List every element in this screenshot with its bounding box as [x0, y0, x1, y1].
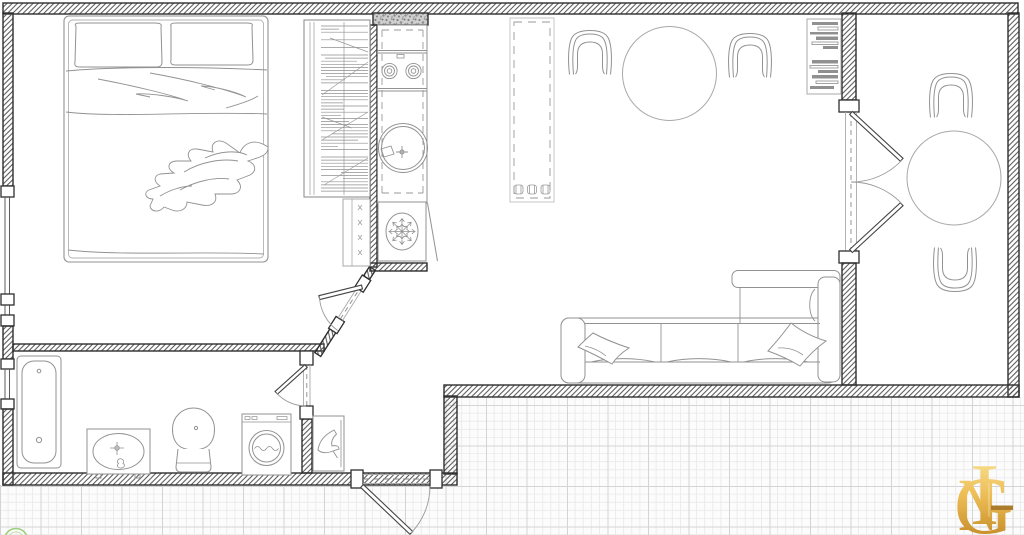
svg-text:I: I	[970, 447, 999, 535]
